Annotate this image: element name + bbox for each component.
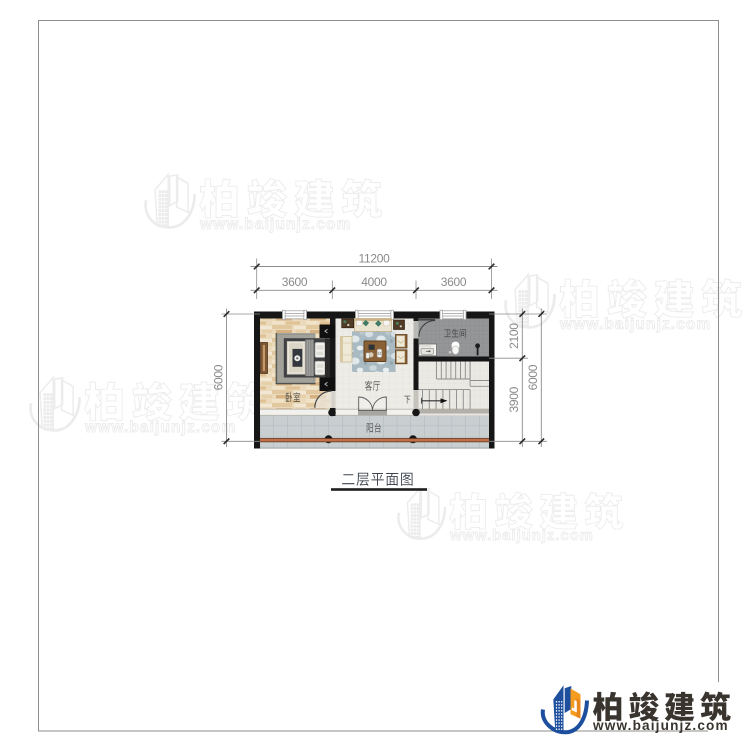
svg-text:2100: 2100 — [507, 323, 521, 349]
svg-text:www.baijunjz.com: www.baijunjz.com — [84, 419, 236, 436]
svg-text:4000: 4000 — [361, 275, 387, 289]
svg-text:6000: 6000 — [526, 364, 540, 390]
svg-text:www.baijunjz.com: www.baijunjz.com — [559, 316, 711, 333]
svg-text:3900: 3900 — [507, 386, 521, 412]
svg-text:www.baijunjz.com: www.baijunjz.com — [592, 718, 729, 733]
svg-text:6000: 6000 — [211, 364, 225, 390]
svg-text:www.baijunjz.com: www.baijunjz.com — [199, 216, 351, 233]
svg-text:www.baijunjz.com: www.baijunjz.com — [449, 528, 594, 544]
svg-text:3600: 3600 — [282, 275, 308, 289]
svg-text:3600: 3600 — [441, 275, 467, 289]
svg-text:11200: 11200 — [359, 251, 391, 265]
